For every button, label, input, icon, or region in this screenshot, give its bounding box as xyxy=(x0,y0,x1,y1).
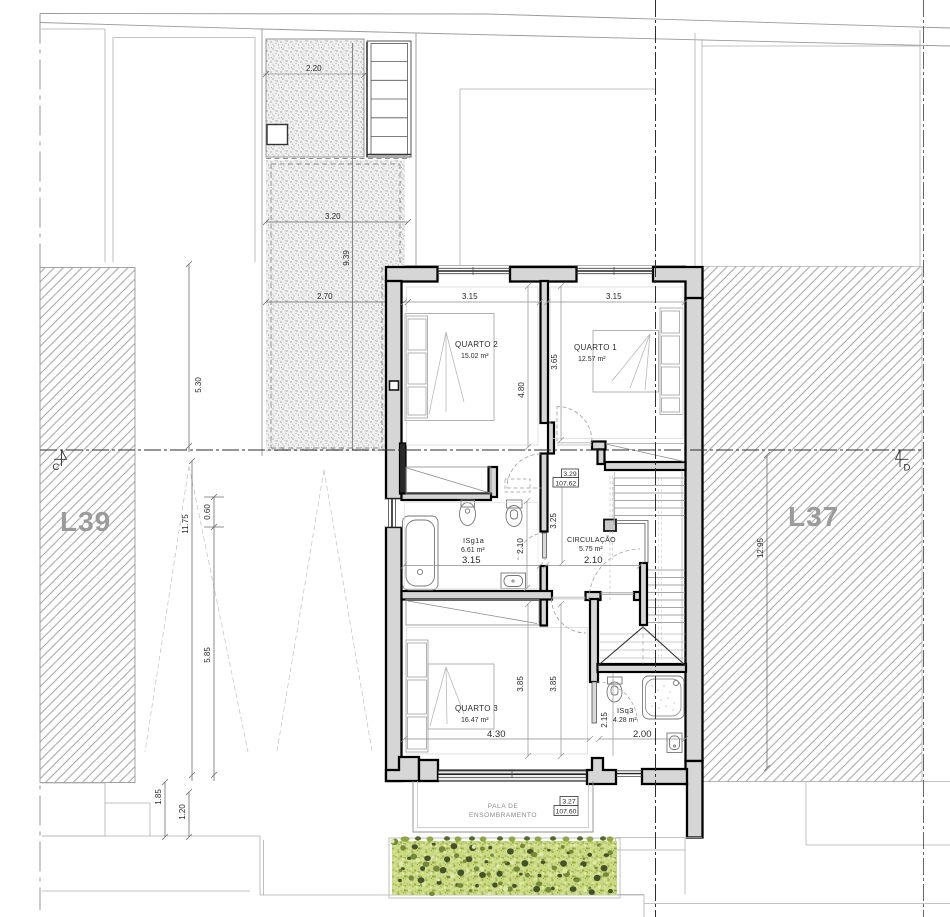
svg-text:1.20: 1.20 xyxy=(178,804,187,820)
svg-text:2.00: 2.00 xyxy=(633,729,652,740)
svg-text:QUARTO 3: QUARTO 3 xyxy=(455,704,498,713)
svg-text:3.15: 3.15 xyxy=(606,292,622,301)
svg-text:5.75 m²: 5.75 m² xyxy=(579,546,603,553)
svg-text:1.85: 1.85 xyxy=(154,789,163,805)
svg-text:3.29: 3.29 xyxy=(563,471,576,478)
svg-text:CIRCULAÇÃO: CIRCULAÇÃO xyxy=(567,535,616,544)
svg-text:L37: L37 xyxy=(788,501,839,532)
svg-text:2.10: 2.10 xyxy=(516,538,525,554)
svg-text:3.85: 3.85 xyxy=(516,676,525,692)
svg-text:9.39: 9.39 xyxy=(342,250,351,266)
svg-text:0.60: 0.60 xyxy=(203,504,212,520)
svg-text:3.15: 3.15 xyxy=(462,555,481,566)
svg-text:12.95: 12.95 xyxy=(756,537,765,558)
svg-text:5.85: 5.85 xyxy=(203,647,212,663)
svg-text:ISq3: ISq3 xyxy=(617,706,634,715)
svg-text:11.75: 11.75 xyxy=(181,514,190,534)
svg-text:3.25: 3.25 xyxy=(549,513,558,529)
svg-text:3.85: 3.85 xyxy=(549,676,558,692)
svg-text:PALA DE: PALA DE xyxy=(488,803,519,810)
svg-text:107.60: 107.60 xyxy=(556,809,577,816)
svg-text:16.47 m²: 16.47 m² xyxy=(461,717,489,724)
svg-text:2.15: 2.15 xyxy=(600,712,609,728)
svg-text:QUARTO 1: QUARTO 1 xyxy=(574,343,617,352)
svg-text:ISg1a: ISg1a xyxy=(463,536,485,545)
svg-text:4.28 m²: 4.28 m² xyxy=(613,717,637,724)
svg-text:2.70: 2.70 xyxy=(317,292,333,301)
svg-text:4.80: 4.80 xyxy=(517,382,526,398)
svg-text:3.15: 3.15 xyxy=(462,292,478,301)
svg-text:C: C xyxy=(53,462,60,473)
svg-text:5.30: 5.30 xyxy=(194,377,203,393)
svg-text:4.30: 4.30 xyxy=(487,729,506,740)
svg-text:2.20: 2.20 xyxy=(306,64,322,73)
svg-text:QUARTO 2: QUARTO 2 xyxy=(455,340,498,349)
svg-text:12.57 m²: 12.57 m² xyxy=(578,356,606,363)
svg-text:3.27: 3.27 xyxy=(562,799,575,806)
svg-text:107.62: 107.62 xyxy=(555,480,576,487)
svg-text:2.10: 2.10 xyxy=(584,555,603,566)
svg-text:ENSOMBRAMENTO: ENSOMBRAMENTO xyxy=(469,812,537,819)
svg-text:L39: L39 xyxy=(60,506,111,537)
svg-text:15.02 m²: 15.02 m² xyxy=(461,353,489,360)
svg-text:D: D xyxy=(904,463,911,474)
svg-text:6.61 m²: 6.61 m² xyxy=(461,547,485,554)
svg-text:3.65: 3.65 xyxy=(550,354,559,370)
svg-text:3.20: 3.20 xyxy=(325,212,341,221)
